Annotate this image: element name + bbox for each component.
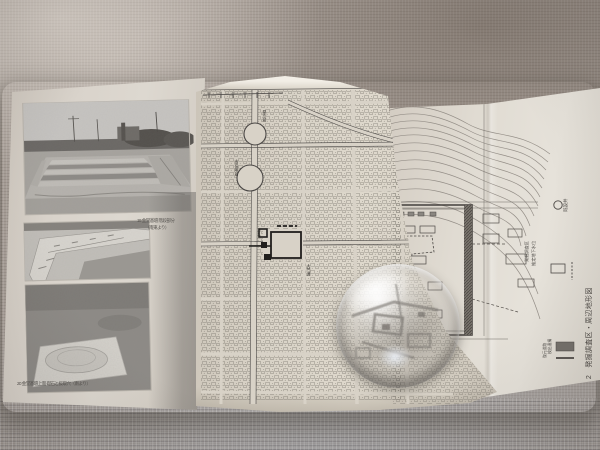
plate-legend: 既設井 発掘調査区 推定地下水位 検出遺構 復元道路 [523,198,574,358]
magnified-map-refraction [336,264,460,388]
book-photo-scene: 19 金堂基壇 階段部分 （南東より） 20 金堂基壇上面 礎石と抜取穴（南より… [0,0,600,450]
legend-label-a: 発掘調査区 [523,241,530,262]
legend-well-label: 既設井 [562,198,569,212]
map-label-0: 県庁前 [263,109,268,123]
photo1-caption: 19 金堂基壇 階段部分 （南東より） [137,218,195,232]
outlying-trenches [472,214,534,312]
legend-label-b: 推定地下水位 [530,241,537,266]
photo1-caption-line1: 19 金堂基壇 階段部分 [137,218,195,225]
photo-plate-column [21,99,200,400]
roundabout-north [244,123,266,145]
roundabout-south [237,165,263,191]
photo3-caption: 20 金堂基壇上面 礎石と抜取穴（南より） [17,381,137,388]
photo1-caption-line2: （南東より） [145,225,195,232]
map-label-2: 大門通 [307,263,312,277]
legend-filled-swatch [556,342,574,351]
road-hatch-band [464,205,472,335]
photo-stairs [23,99,197,215]
bw-photographs [21,99,200,395]
plate-caption: 図版 2 発掘調査区・周辺地形図 [584,287,593,396]
left-photo-page: 19 金堂基壇 階段部分 （南東より） 20 金堂基壇上面 礎石と抜取穴（南より… [0,72,210,416]
glass-paperweight [336,264,460,388]
photo-pavement [23,220,150,281]
legend-label-d: 復元道路 [542,343,547,358]
legend-well-circle [554,201,562,209]
photo-column-base [25,282,151,393]
legend-label-c: 検出遺構 [547,339,552,354]
legend-area-box [551,264,565,273]
map-label-1: 市役所前 [235,159,240,177]
